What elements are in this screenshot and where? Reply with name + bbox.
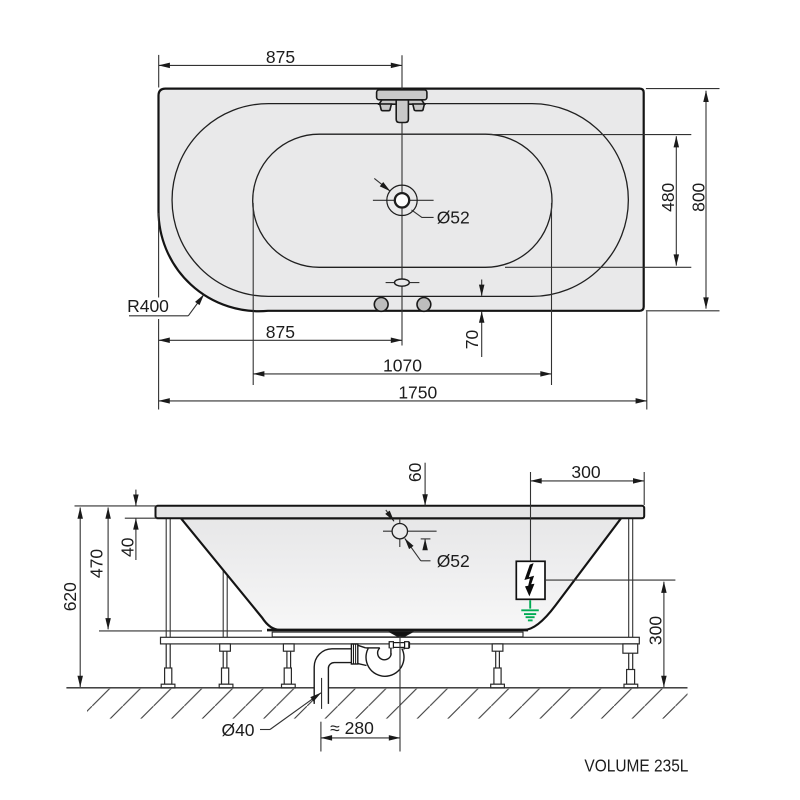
svg-text:480: 480 — [658, 182, 678, 211]
svg-text:Ø52: Ø52 — [437, 551, 470, 571]
svg-text:620: 620 — [60, 582, 80, 611]
svg-text:70: 70 — [462, 330, 482, 350]
svg-text:VOLUME 235L: VOLUME 235L — [584, 755, 688, 775]
svg-text:875: 875 — [266, 322, 295, 342]
svg-text:1070: 1070 — [383, 356, 422, 376]
svg-text:60: 60 — [405, 462, 425, 482]
svg-text:R400: R400 — [127, 296, 169, 316]
svg-text:Ø52: Ø52 — [437, 208, 470, 228]
svg-text:1750: 1750 — [398, 383, 437, 403]
svg-text:800: 800 — [689, 182, 709, 211]
svg-text:875: 875 — [266, 47, 295, 67]
svg-text:470: 470 — [87, 549, 107, 578]
svg-text:Ø40: Ø40 — [221, 720, 254, 740]
svg-text:300: 300 — [571, 462, 600, 482]
svg-text:≈ 280: ≈ 280 — [330, 718, 374, 738]
svg-text:300: 300 — [646, 616, 666, 645]
svg-text:40: 40 — [117, 537, 137, 557]
